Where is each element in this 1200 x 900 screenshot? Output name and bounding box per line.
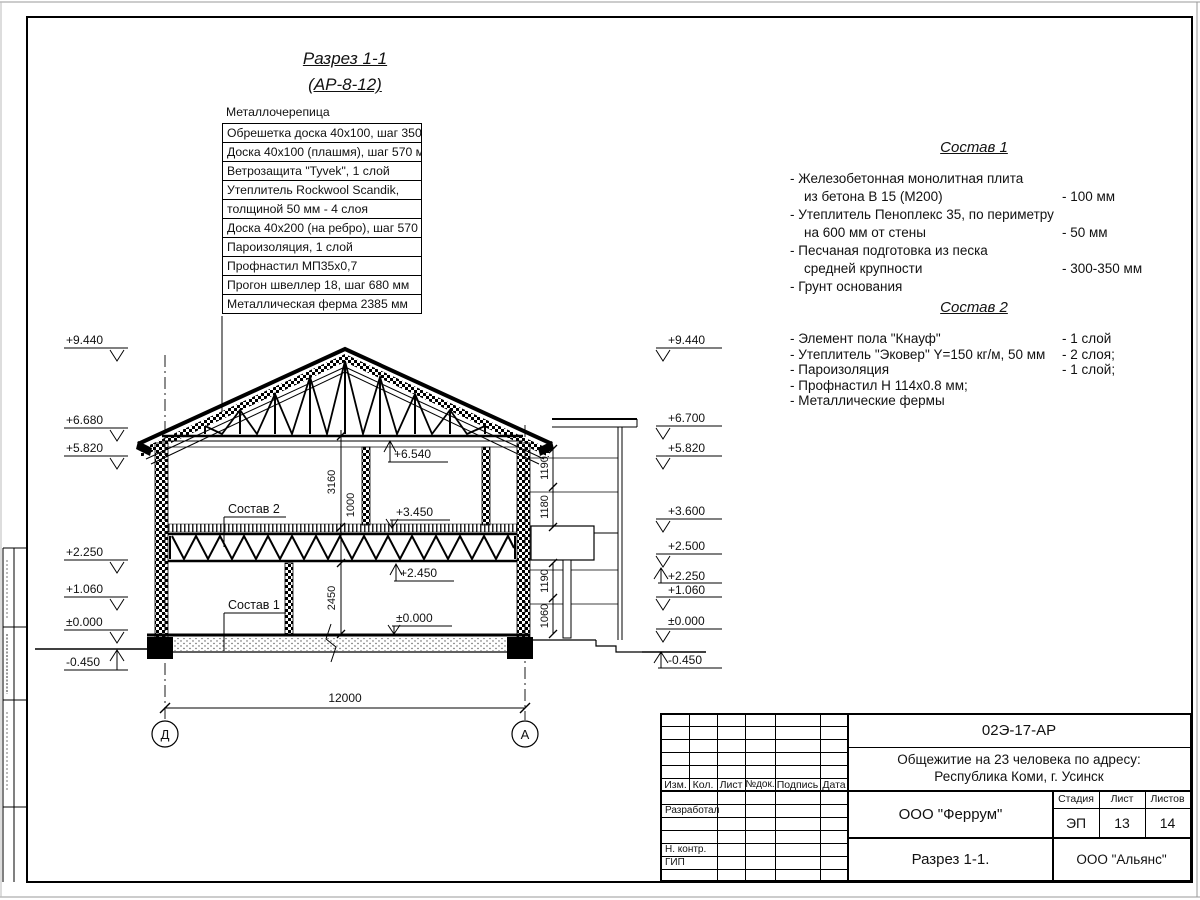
partition-upper-2	[482, 447, 490, 525]
level-mark-zero	[388, 625, 452, 634]
drawing-name: Разрез 1-1.	[848, 851, 1053, 868]
callout-row: Пароизоляция, 1 слой	[223, 238, 421, 257]
role-gip: ГИП	[665, 857, 685, 868]
level-value-truss: +2.450	[400, 566, 437, 580]
role-developer: Разработал	[665, 805, 719, 816]
foundation-right	[507, 637, 533, 659]
porch-canopy	[531, 526, 594, 560]
spec-value	[1062, 242, 1158, 260]
wall-right	[517, 443, 530, 640]
elev-left-0: +9.440	[66, 333, 103, 347]
floor-truss	[168, 524, 517, 561]
sheet-number: 13	[1099, 815, 1145, 831]
callout-row: Профнастил МП35х0,7	[223, 257, 421, 276]
spec-line: - Пароизоляция	[790, 362, 1062, 378]
dim-right-3: 1190	[539, 569, 551, 593]
elev-left-3: +2.250	[66, 545, 103, 559]
dim-right-4: 1060	[539, 604, 551, 628]
sostav1-label: Состав 1	[228, 598, 280, 612]
spec-value	[1062, 278, 1158, 296]
sheet-header: Лист	[1099, 793, 1145, 805]
roof-callout-table: Обрешетка доска 40х100, шаг 350 мм Доска…	[222, 123, 422, 314]
object-name-line1: Общежитие на 23 человека по адресу:	[848, 752, 1190, 767]
section-title-line1: Разрез 1-1	[278, 46, 412, 72]
elev-left-2: +5.820	[66, 441, 103, 455]
callout-row: толщиной 50 мм - 4 слоя	[223, 200, 421, 219]
org2-name: ООО "Альянс"	[1053, 852, 1190, 867]
col-ndok: №док.	[745, 779, 775, 790]
callout-row: Утеплитель Rockwool Scandik,	[223, 181, 421, 200]
title-block: 02Э-17-АР Общежитие на 23 человека по ад…	[660, 713, 1192, 882]
elev-right-7: ±0.000	[668, 614, 705, 628]
dim-upper-height: 3160	[326, 470, 338, 494]
elev-right-0: +9.440	[668, 333, 705, 347]
elev-left-5: ±0.000	[66, 615, 103, 629]
span-dimension-value: 12000	[328, 691, 362, 705]
col-data: Дата	[820, 779, 848, 791]
sostav1-title: Состав 1	[790, 139, 1158, 156]
sostav2-label: Состав 2	[228, 502, 280, 516]
object-name-line2: Республика Коми, г. Усинск	[848, 769, 1190, 784]
sostav1-block: Состав 1 - Железобетонная монолитная пли…	[790, 139, 1158, 296]
spec-line: - Элемент пола "Кнауф"	[790, 331, 1062, 347]
elev-right-1: +6.700	[668, 411, 705, 425]
spec-line: - Грунт основания	[790, 278, 1062, 296]
spec-line: - Железобетонная монолитная плита	[790, 170, 1062, 188]
level-value-zero: ±0.000	[396, 611, 433, 625]
col-podpis: Подпись	[775, 779, 820, 791]
partition-lower	[285, 563, 293, 635]
roof	[136, 349, 554, 464]
elev-right-5: +2.250	[668, 569, 705, 583]
spec-value: - 50 мм	[1062, 224, 1158, 242]
stage-header: Стадия	[1053, 793, 1099, 805]
dim-right-2: 1180	[539, 495, 551, 519]
sostav2-block: Состав 2 - Элемент пола "Кнауф"- 1 слой …	[790, 299, 1158, 409]
roof-callout-header: Металлочерепица	[222, 104, 422, 123]
partition-upper-1	[362, 447, 370, 525]
spec-line: - Утеплитель "Эковер" Y=150 кг/м, 50 мм	[790, 347, 1062, 363]
spec-value: - 2 слоя;	[1062, 347, 1158, 363]
callout-row: Прогон швеллер 18, шаг 680 мм	[223, 276, 421, 295]
roof-truss-members	[205, 361, 485, 434]
dim-lower-height: 2450	[326, 586, 338, 610]
spec-line: средней крупности	[790, 260, 1062, 278]
callout-row: Доска 40х100 (плашмя), шаг 570 мм	[223, 143, 421, 162]
section-title: Разрез 1-1 (АР-8-12)	[278, 46, 412, 99]
callout-row: Металлическая ферма 2385 мм	[223, 295, 421, 314]
spec-line: на 600 мм от стены	[790, 224, 1062, 242]
level-value-floor2: +3.450	[396, 505, 433, 519]
level-value-ceiling: +6.540	[394, 447, 431, 461]
spec-value: - 100 мм	[1062, 188, 1158, 206]
wall-left	[155, 443, 168, 640]
drawing-sheet: Д А 12000	[0, 0, 1200, 900]
doc-number: 02Э-17-АР	[848, 722, 1190, 739]
role-ncontrol: Н. контр.	[665, 844, 706, 855]
col-list: Лист	[717, 779, 745, 791]
elev-right-2: +5.820	[668, 441, 705, 455]
callout-row: Ветрозащита "Tyvek", 1 слой	[223, 162, 421, 181]
foundation-left	[147, 637, 173, 659]
col-izm: Изм.	[662, 779, 689, 791]
sheets-header: Листов	[1145, 793, 1190, 805]
spec-line: - Утеплитель Пеноплекс 35, по периметру	[790, 206, 1062, 224]
dim-truss-height: 1000	[345, 493, 357, 517]
org-name: ООО "Феррум"	[848, 806, 1053, 823]
stage-value: ЭП	[1053, 815, 1099, 831]
left-margin-boxes	[3, 548, 27, 882]
callout-row: Обрешетка доска 40х100, шаг 350 мм	[223, 124, 421, 143]
elev-left-6: -0.450	[66, 655, 100, 669]
spec-value: - 1 слой;	[1062, 362, 1158, 378]
spec-value: - 1 слой	[1062, 331, 1158, 347]
callout-row: Доска 40х200 (на ребро), шаг 570 мм	[223, 219, 421, 238]
elev-right-3: +3.600	[668, 504, 705, 518]
col-kol: Кол.	[689, 779, 717, 791]
spec-line: - Профнастил Н 114х0.8 мм;	[790, 378, 1062, 394]
roof-callout: Металлочерепица Обрешетка доска 40х100, …	[222, 104, 422, 314]
sostav2-title: Состав 2	[790, 299, 1158, 316]
porch-post	[563, 560, 571, 638]
spec-value	[1062, 393, 1158, 409]
elev-left-1: +6.680	[66, 413, 103, 427]
porch-steps	[596, 640, 642, 652]
sheets-total: 14	[1145, 815, 1190, 831]
axis-letter-right: А	[521, 727, 530, 742]
elev-right-4: +2.500	[668, 539, 705, 553]
spec-line: из бетона В 15 (М200)	[790, 188, 1062, 206]
dim-right-1: 1190	[539, 456, 551, 480]
spec-value: - 300-350 мм	[1062, 260, 1158, 278]
spec-value	[1062, 170, 1158, 188]
elev-right-8: -0.450	[668, 653, 702, 667]
spec-value	[1062, 206, 1158, 224]
axis-letter-left: Д	[161, 727, 170, 742]
elev-right-6: +1.060	[668, 583, 705, 597]
spec-line: - Песчаная подготовка из песка	[790, 242, 1062, 260]
elev-left-4: +1.060	[66, 582, 103, 596]
spec-value	[1062, 378, 1158, 394]
section-title-line2: (АР-8-12)	[278, 72, 412, 98]
spec-line: - Металлические фермы	[790, 393, 1062, 409]
